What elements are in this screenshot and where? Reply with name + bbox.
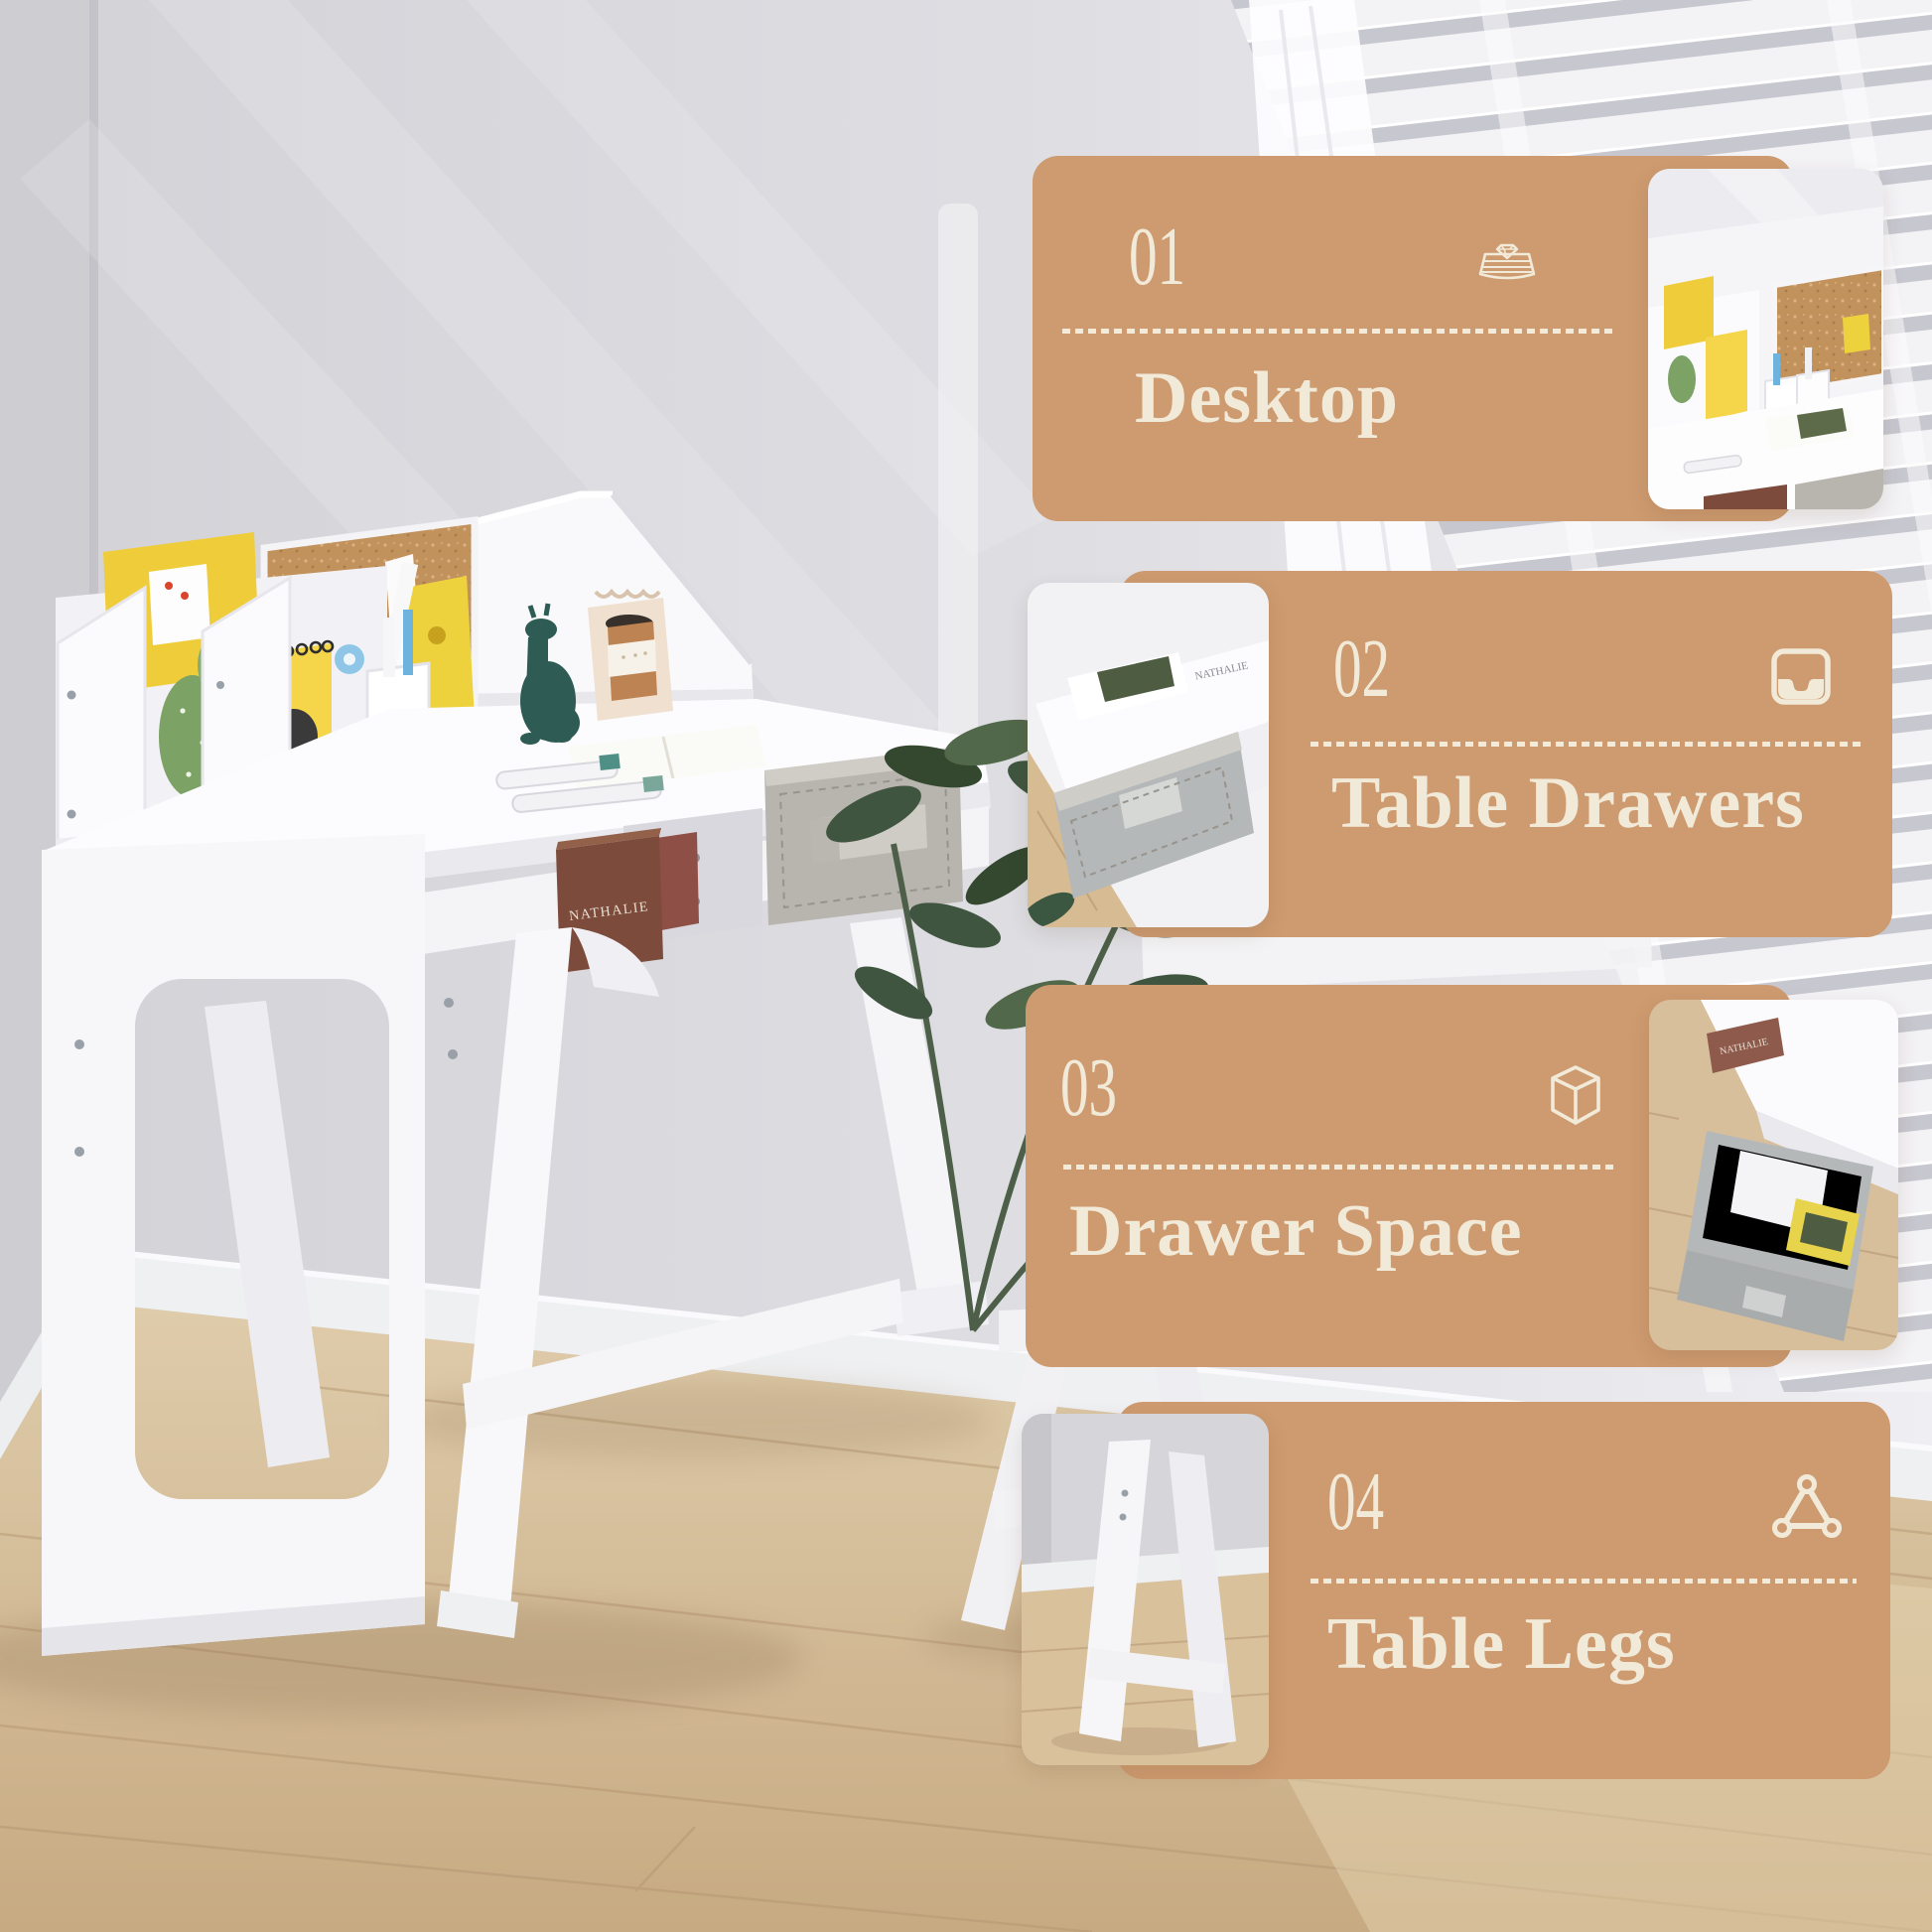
- pen-white: [383, 618, 395, 677]
- thumbnail-table-legs: [1022, 1414, 1269, 1765]
- feature-title: Table Drawers: [1331, 765, 1805, 843]
- dashed-divider: [1311, 742, 1863, 747]
- feature-number: 02: [1333, 627, 1390, 711]
- paper-bag: [588, 592, 673, 721]
- thumbnail-desktop-closeup: [1648, 169, 1883, 509]
- feature-title: Drawer Space: [1069, 1193, 1523, 1271]
- product-feature-infographic: O.DUCK: [0, 0, 1932, 1932]
- thumb1-sticky: [1843, 314, 1870, 353]
- thumb1-pen2: [1805, 347, 1812, 379]
- label-dot: [165, 582, 173, 590]
- desktop-diamond-icon: [1477, 239, 1537, 283]
- light-band: [938, 204, 978, 759]
- thumb4-sidewall: [1022, 1414, 1051, 1583]
- feature-number: 03: [1060, 1046, 1117, 1130]
- label-dot2: [181, 592, 189, 600]
- packet-doodle: [428, 626, 446, 644]
- feature-title: Desktop: [1135, 360, 1399, 438]
- thumbnail-drawer-closeup: NATHALIE: [1028, 583, 1269, 927]
- dashed-divider: [1311, 1579, 1857, 1584]
- dashed-divider: [1063, 1165, 1613, 1170]
- dashed-divider: [1062, 329, 1615, 334]
- thumbnail-open-drawer: NATHALIE: [1649, 1000, 1898, 1350]
- thumb1-pen: [1773, 353, 1780, 385]
- inbox-drawer-icon: [1770, 648, 1832, 706]
- tape-roll-core: [344, 653, 355, 665]
- triangle-nodes-icon: [1770, 1473, 1844, 1541]
- cube-icon: [1549, 1064, 1602, 1126]
- feature-number: 01: [1129, 215, 1185, 299]
- pen-blue: [403, 610, 413, 675]
- thumb1-cactus: [1668, 355, 1696, 403]
- thumb1-notepad: [1706, 330, 1747, 421]
- feature-title: Table Legs: [1327, 1606, 1676, 1684]
- feature-number: 04: [1327, 1460, 1384, 1544]
